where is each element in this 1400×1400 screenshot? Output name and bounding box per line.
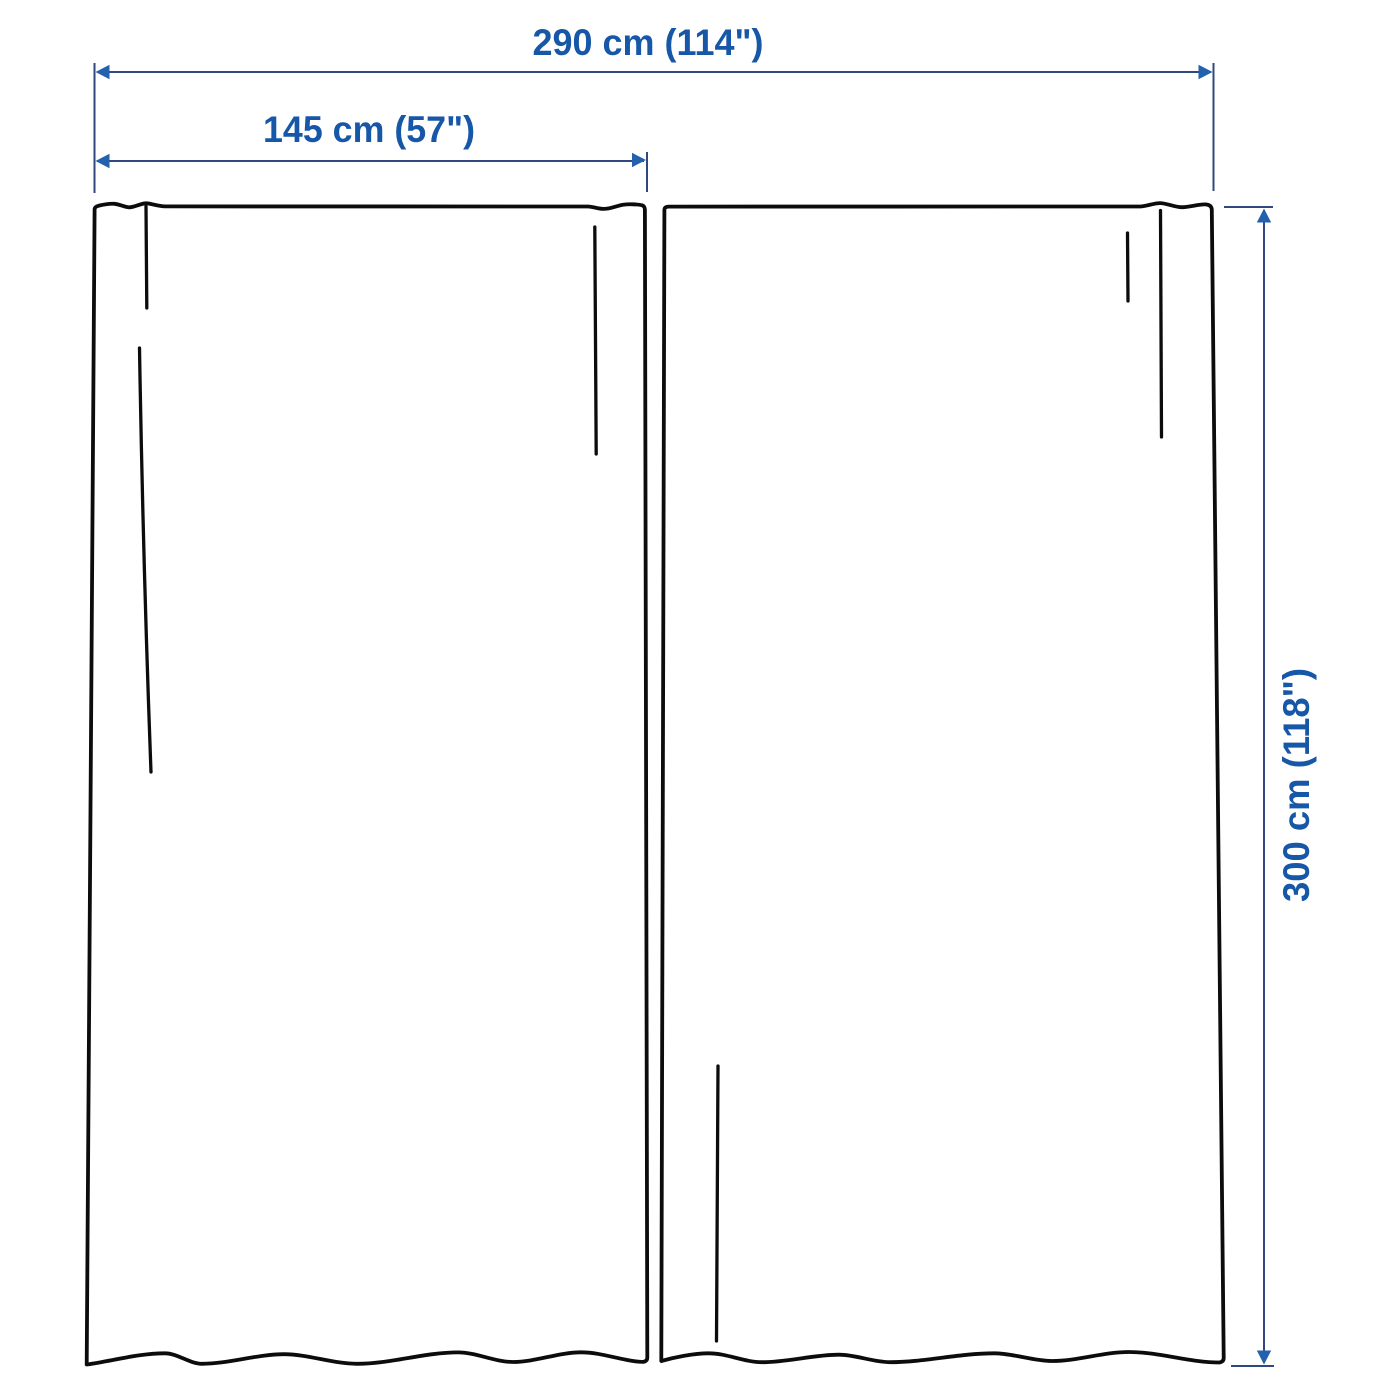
- svg-text:145 cm (57"): 145 cm (57"): [263, 109, 475, 150]
- svg-text:300 cm (118"): 300 cm (118"): [1276, 668, 1317, 902]
- svg-text:290 cm (114"): 290 cm (114"): [533, 22, 764, 63]
